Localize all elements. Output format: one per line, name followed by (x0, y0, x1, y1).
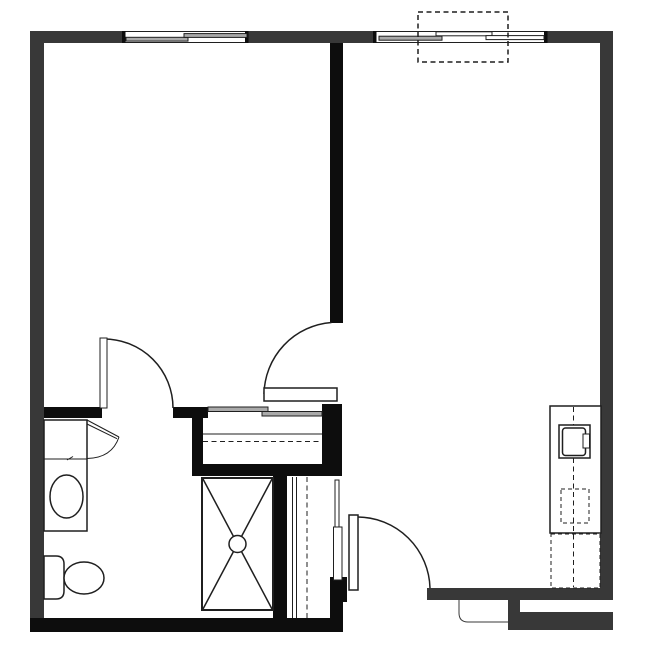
closet-right-jamb (322, 404, 342, 418)
right-wall (600, 31, 613, 600)
window-sash (184, 34, 247, 38)
kitchenette (550, 406, 601, 588)
window-sash (436, 32, 492, 36)
hall-door (264, 323, 337, 402)
closet-left-jamb (173, 407, 208, 418)
pantry-door (334, 480, 343, 580)
entry-niche-outline (459, 599, 509, 622)
toilet (44, 556, 104, 599)
window-end-tick (544, 31, 548, 43)
left-wall (30, 31, 44, 618)
entry-jamb-upper (330, 577, 347, 602)
partition-wall (330, 43, 343, 323)
window-sash (126, 37, 188, 41)
exterior-walls (30, 31, 613, 630)
entry-wall-connector (508, 600, 520, 630)
kitchen-sink-faucet (583, 434, 590, 448)
door-swing-arc (104, 339, 173, 408)
shower-drain (229, 536, 246, 553)
entry-jamb-lower (330, 602, 343, 632)
refrigerator-dashed-box (551, 534, 600, 588)
bypass-slider-panel (262, 412, 322, 417)
window-sash (379, 36, 442, 40)
closet-left-wall (192, 418, 203, 465)
bathroom-vanity (44, 420, 119, 531)
shower-pan (202, 478, 273, 610)
toilet-tank (44, 556, 64, 599)
bypass-slider-panel (208, 407, 268, 412)
door-leaf (264, 388, 337, 401)
door-leaf (334, 527, 343, 580)
vanity-angled-edge (87, 420, 119, 437)
top-wall-mid-segment (248, 31, 374, 43)
bathroom-door (100, 338, 173, 408)
entry-door (349, 515, 430, 590)
bottom-wall (30, 618, 343, 632)
kitchen-sink-basin (563, 428, 586, 456)
pantry-wall (273, 476, 287, 619)
linen-closet (293, 477, 308, 618)
toilet-bowl (64, 562, 104, 594)
closet-bottom-wall (192, 464, 342, 476)
bathroom-wall (44, 407, 102, 418)
closet-right-wall (322, 418, 342, 465)
corridor-wall (520, 612, 613, 630)
floor-plan-canvas (0, 0, 650, 650)
window-end-tick (373, 31, 377, 43)
window-end-tick (122, 31, 126, 43)
vanity-angled-edge (87, 424, 117, 439)
door-leaf (100, 338, 107, 408)
door-swing-arc (358, 517, 430, 588)
door-swing-arc (264, 323, 332, 395)
vanity-curved-front (87, 437, 119, 459)
door-frame-line (335, 480, 339, 528)
floor-plan-drawing (0, 0, 650, 650)
vanity-sink-basin (50, 475, 83, 518)
window-sash (486, 36, 544, 40)
entry-wall-right (427, 588, 612, 600)
door-leaf (349, 515, 358, 590)
window-bedroom (122, 31, 249, 43)
bedroom-closet (203, 407, 322, 442)
window-living (373, 31, 548, 43)
interior-walls (30, 43, 347, 632)
